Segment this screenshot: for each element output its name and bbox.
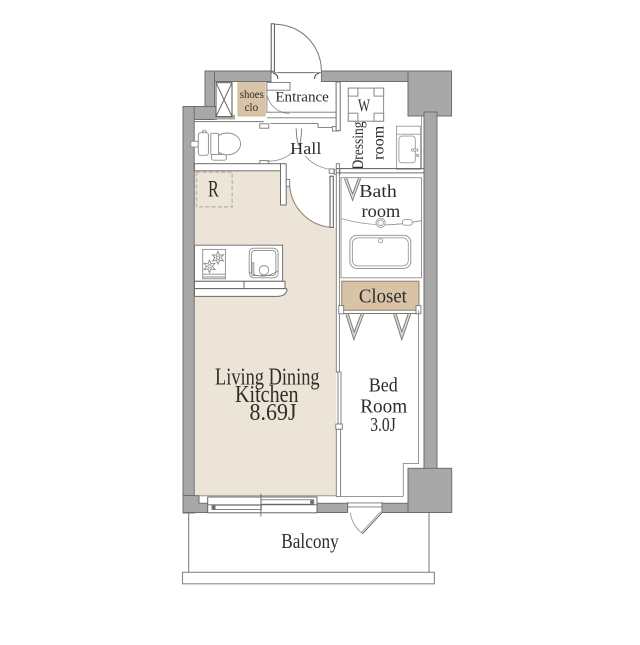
svg-text:room: room (371, 125, 388, 160)
svg-text:shoes: shoes (240, 87, 264, 101)
svg-text:Balcony: Balcony (281, 529, 339, 553)
svg-text:R: R (208, 177, 219, 203)
svg-text:3.0J: 3.0J (370, 414, 396, 436)
svg-text:clo: clo (245, 100, 259, 114)
svg-text:Dressing: Dressing (350, 122, 367, 170)
svg-text:8.69J: 8.69J (250, 400, 297, 426)
svg-text:W: W (358, 96, 370, 116)
svg-text:Hall: Hall (290, 139, 322, 158)
svg-text:Closet: Closet (359, 287, 408, 308)
svg-text:Bed: Bed (369, 374, 398, 396)
svg-text:Bath: Bath (359, 181, 397, 201)
svg-text:Entrance: Entrance (275, 89, 329, 105)
